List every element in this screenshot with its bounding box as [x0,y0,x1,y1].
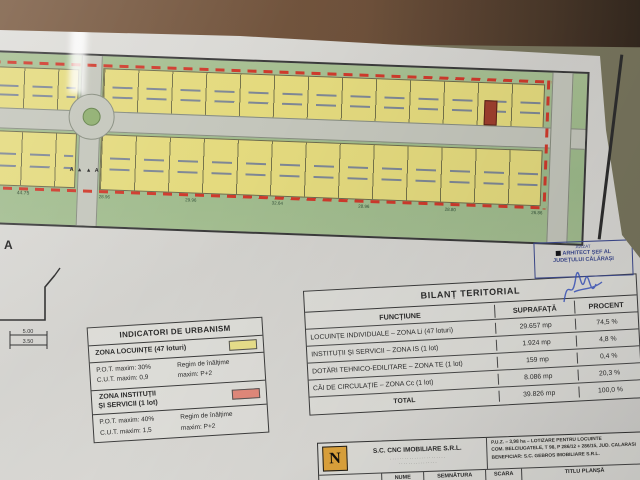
section-dim-1: 5.00 [23,329,34,335]
suprafata-cell: 8.086 mp [498,369,578,384]
project-title-cell: P.U.Z. – 3,98 ha – LOTIZARE PENTRU LOCUI… [486,432,640,469]
paper-fold-glare [69,26,87,95]
header-scara: SCARA [485,469,522,480]
header-semnatura: SEMNĂTURA [423,470,486,480]
procent-cell: 4,8 % [576,332,640,346]
procent-cell: 74,5 % [575,315,639,329]
road-vertical-right [546,71,574,246]
stamp-seal-icon [555,250,560,255]
dim-label: 32.64 [272,200,283,205]
zone-institutii-label: ZONA INSTITUȚII ȘI SERVICII (1 lot) [98,390,158,411]
total-procent: 100,0 % [578,383,640,397]
zone-locuinte-label: ZONA LOCUINȚE (47 loturi) [95,344,187,358]
section-dim-2: 3.50 [23,339,34,345]
parcel-block-lower-left [0,130,77,188]
photo-of-zoning-plan: 28.96 29.96 32.64 28.96 28.80 26.86 44.7… [0,0,640,480]
dimension-44-75: 44.75 [17,190,30,196]
zone-institutii-line2: ȘI SERVICII (1 lot) [98,399,158,410]
total-suprafata: 39.826 mp [499,387,579,402]
dim-label: 26.86 [531,210,542,215]
company-cell: N S.C. CNC IMOBILIARE S.R.L. · · · · · ·… [318,438,487,475]
dim-label: 28.96 [99,194,110,199]
signature-scribble [556,262,616,310]
te-zone-lot [484,100,498,125]
empty-cell [319,474,382,480]
stamp-line1-text: ARHITECT ȘEF AL [562,249,611,257]
plan-paper-sheet: 28.96 29.96 32.64 28.96 28.80 26.86 44.7… [0,0,640,480]
roundabout-island [82,107,101,126]
parcel-block-upper-left [0,66,79,113]
site-plan-map: 28.96 29.96 32.64 28.96 28.80 26.86 44.7… [0,50,590,246]
dim-label: 28.80 [445,207,456,212]
suprafata-cell: 159 mp [497,352,577,367]
title-block: N S.C. CNC IMOBILIARE S.R.L. · · · · · ·… [317,431,640,480]
dim-label: 29.96 [185,197,196,202]
yellow-zone-swatch [229,339,258,351]
header-nume: NUME [381,472,424,480]
company-logo-icon: N [322,446,348,472]
dim-label: 28.96 [358,204,369,209]
procent-cell: 0,4 % [576,349,640,363]
urbanism-indicators-table: INDICATORI DE URBANISM ZONA LOCUINȚE (47… [87,317,270,444]
suprafata-cell: 29.657 mp [495,318,575,333]
section-cut-markers: A ▲ ▲ A [70,167,100,174]
company-text: S.C. CNC IMOBILIARE S.R.L. · · · · · · ·… [352,444,483,467]
procent-cell: 20,3 % [577,366,640,380]
suprafata-cell: 1.924 mp [496,335,576,350]
red-zone-swatch [232,388,261,400]
